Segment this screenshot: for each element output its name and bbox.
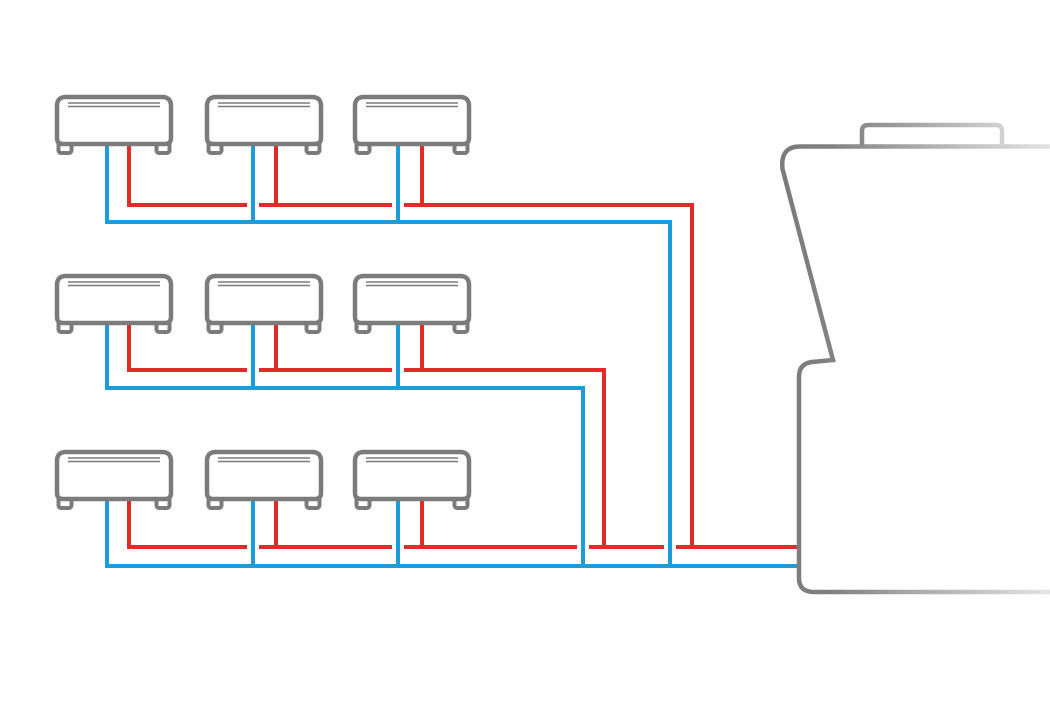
indoor-unit-r2-c2 [207,276,321,332]
unit-body [57,276,171,323]
unit-body [207,276,321,323]
red-pipe-segment [129,497,247,547]
indoor-unit-r1-c1 [57,97,171,153]
unit-body [355,276,469,323]
outdoor-unit-outline [782,147,1050,593]
unit-body [355,452,469,499]
indoor-unit-r3-c2 [207,452,321,508]
indoor-unit-r2-c1 [57,276,171,332]
outdoor-unit [782,125,1050,592]
unit-body [57,97,171,144]
hvac-system-diagram [0,0,1050,720]
indoor-units-group [57,97,469,508]
diagram-canvas [0,0,1050,720]
unit-body [207,452,321,499]
unit-body [355,97,469,144]
outdoor-unit-top-panel [862,125,1002,146]
unit-body [207,97,321,144]
red-pipe-segment [129,321,247,370]
indoor-unit-r2-c3 [355,276,469,332]
blue-pipe-segment [107,321,583,568]
indoor-unit-r3-c3 [355,452,469,508]
indoor-unit-r1-c3 [355,97,469,153]
indoor-unit-r3-c1 [57,452,171,508]
unit-body [57,452,171,499]
indoor-unit-r1-c2 [207,97,321,153]
red-pipe-segment [129,142,247,205]
